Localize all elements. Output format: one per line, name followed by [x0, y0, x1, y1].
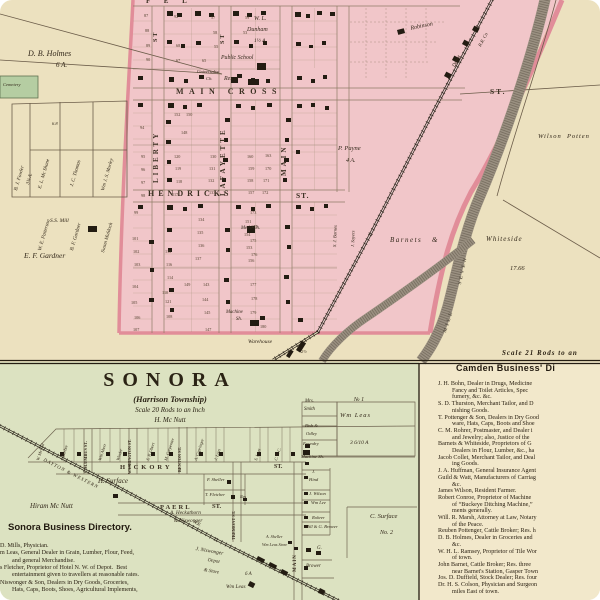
owner-label: J. C. Thomas: [70, 160, 83, 188]
directory-entry-line: Jacob Collet, Merchant Tailor, and Deal: [438, 455, 535, 461]
plot-number: 172: [262, 191, 268, 195]
plot-number: 97: [141, 181, 145, 185]
owner-label: Universalist: [197, 70, 219, 75]
building-footprint: [166, 120, 171, 124]
plot-number: 58: [213, 31, 217, 35]
owner-label: E. F. Gardner: [24, 252, 65, 260]
building-footprint: [296, 42, 301, 46]
directory-entry-line: of “Buckeye Ditching Machine,”: [452, 502, 533, 508]
owner-label: Machine: [226, 311, 243, 316]
directory-entry-line: Reuben Pottenger, Cattle Broker; Res. h: [438, 528, 536, 534]
building-footprint: [322, 41, 326, 45]
owner-label: W. L.: [254, 16, 266, 22]
plot-number: 135: [197, 231, 203, 235]
plot-number: 145: [204, 311, 210, 315]
owner-label: Robinson: [410, 21, 433, 32]
plot-number: 171: [263, 179, 269, 183]
owner-label: W. E. Patterson: [38, 219, 52, 252]
plot-number: 136: [198, 244, 204, 248]
owner-label: Wilson Potten: [538, 134, 590, 141]
building-footprint: [286, 300, 290, 304]
plot-number: 153: [246, 246, 252, 250]
building-footprint: [196, 41, 201, 45]
plot-number: 92: [174, 15, 178, 19]
building-footprint: [462, 40, 470, 47]
building-footprint: [167, 40, 172, 44]
directory-entry-line: W. H. L. Ramsey, Proprietor of Tile Wor: [438, 549, 537, 555]
building-footprint: [226, 248, 230, 252]
building-footprint: [251, 207, 255, 211]
building-footprint: [285, 138, 289, 142]
directory-entry-line: J. H. Bohn, Dealer in Drugs, Medicine: [438, 381, 532, 387]
building-footprint: [209, 13, 214, 17]
directory-entry-line: miles East of town.: [452, 589, 499, 595]
owner-label: Sh.: [236, 318, 242, 323]
plot-number: 152: [174, 113, 180, 117]
directory-entry-line: of the Peace.: [452, 522, 483, 528]
building-footprint: [317, 11, 322, 15]
directory-entry-line: John Barnet, Cattle Broker; Res. three: [438, 562, 531, 568]
owner-label: Dunham: [247, 27, 268, 33]
owner-label: Whiteside: [486, 236, 523, 243]
plot-number: 156: [248, 259, 254, 263]
building-footprint: [249, 44, 253, 48]
owner-label: E. L. Mc Shane: [38, 158, 51, 189]
building-footprint: [168, 103, 174, 108]
directory-entry-line: D. B. Holmes, Dealer in Groceries and: [438, 535, 533, 541]
directory-entry-line: Dr. H. S. Colson, Physician and Surgeon: [438, 582, 537, 588]
building-footprint: [177, 13, 182, 17]
owner-label: 17.66: [510, 266, 525, 273]
seven-mile-creek: [322, 0, 546, 361]
mill-label: S.S. Mill: [50, 219, 69, 225]
plot-number: 176: [251, 253, 257, 257]
plot-number: 151: [245, 220, 251, 224]
street-label-top: F E L: [146, 0, 193, 5]
building-footprint: [251, 78, 255, 82]
building-footprint: [287, 245, 291, 249]
plot-number: 147: [205, 328, 211, 332]
plot-number: 160: [247, 155, 253, 159]
plot-number: 95: [141, 155, 145, 159]
plot-number: 173: [250, 211, 256, 215]
camden-street-grid: [133, 6, 465, 333]
owner-label: D. B. Holmes: [28, 50, 71, 58]
owner-label: 3¾ A.: [26, 173, 34, 186]
plot-number: 53: [243, 31, 247, 35]
owner-label: Susan Muldoch: [101, 222, 114, 253]
building-footprint: [183, 105, 187, 109]
building-footprint: [286, 118, 291, 122]
building-footprint: [452, 56, 461, 64]
building-footprint: [149, 298, 154, 302]
owner-label: 1½ A.: [254, 39, 267, 45]
creek-label: MILE: [443, 310, 455, 334]
depot-label: Depot: [452, 55, 463, 69]
camden-directory-heading: Camden Business' Di: [456, 364, 555, 373]
directory-entry-line: of town.: [452, 555, 472, 561]
vacant-block-lines: [350, 8, 445, 80]
plot-number: 159: [248, 167, 254, 171]
directory-entry-line: Barnets & Whiteside, Proprietors of G: [438, 441, 532, 447]
plot-number: 67: [176, 59, 180, 63]
building-footprint: [306, 14, 310, 18]
plot-number: 180: [260, 325, 266, 329]
building-footprint: [181, 44, 185, 48]
directory-entry-line: ing Goods.: [452, 461, 479, 467]
building-footprint: [138, 205, 143, 209]
directory-entry-line: &c.: [452, 482, 461, 488]
plot-number: 114: [167, 276, 173, 280]
plot-number: 148: [181, 131, 187, 135]
directory-entry-line: nishing Goods.: [452, 408, 489, 414]
building-footprint: [283, 178, 287, 182]
camden-scale-note: Scale 21 Rods to an: [502, 349, 578, 357]
directory-entry-line: ments generally.: [452, 508, 492, 514]
directory-entry-line: Robert Conroe, Proprietor of Machine: [438, 495, 531, 501]
building-footprint: [88, 226, 97, 232]
plot-number: 170: [265, 167, 271, 171]
building-footprint: [167, 205, 173, 210]
camden-buildings: [88, 11, 480, 358]
street-label-st-hendricks: ST.: [296, 192, 310, 200]
sonora-title-block: SONORA (Harrison Township) Scale 20 Rods…: [55, 369, 285, 424]
rural-boundary-lines: [0, 14, 222, 197]
plot-number: 68: [176, 44, 180, 48]
plot-number: 87: [144, 14, 148, 18]
building-footprint: [311, 103, 315, 107]
directory-entry-line: J. A. Huffman, General Insurance Agent: [438, 468, 536, 474]
building-footprint: [150, 268, 154, 272]
building-footprint: [257, 63, 266, 70]
plot-number: 175: [250, 239, 256, 243]
building-footprint: [167, 178, 172, 182]
owner-label: Barnets &: [390, 237, 439, 244]
directory-entry-line: fumery, &c. &c.: [452, 394, 492, 400]
plot-number: 103: [134, 263, 140, 267]
building-footprint: [309, 45, 313, 48]
street-label-main-cross: MAIN CROSS: [176, 88, 282, 96]
plot-number: 131: [209, 167, 215, 171]
building-footprint: [297, 76, 302, 80]
building-footprint: [250, 320, 259, 326]
building-footprint: [223, 158, 228, 162]
building-footprint: [444, 72, 452, 79]
building-footprint: [183, 207, 187, 211]
owner-label: P. Payne: [338, 146, 361, 153]
plot-number: 130: [210, 155, 216, 159]
east-boundary-lines: [460, 0, 600, 258]
plot-number: 179: [250, 311, 256, 315]
building-footprint: [195, 11, 201, 16]
plot-number: 150: [186, 113, 192, 117]
plot-number: 149: [184, 283, 190, 287]
plot-number: 96: [141, 168, 145, 172]
directory-entry-line: Fancy and Toilet Articles, Spec: [452, 388, 528, 394]
building-footprint: [138, 76, 143, 80]
building-footprint: [296, 205, 301, 209]
owner-label: Res: [224, 76, 233, 82]
building-footprint: [199, 75, 204, 79]
building-footprint: [149, 240, 154, 244]
plot-number: 163: [265, 154, 271, 158]
building-footprint: [310, 207, 314, 211]
building-footprint: [225, 228, 230, 232]
plot-number: 115: [165, 250, 171, 254]
building-footprint: [296, 341, 306, 353]
directory-entry-line: near Barnet's Station, Gasper Town: [452, 569, 538, 575]
directory-entry-line: Dealers in Flour, Lumber, &c., ha: [452, 448, 534, 454]
building-footprint: [169, 77, 174, 82]
directory-entry-line: S. D. Thurston, Merchant Tailor, and D: [438, 401, 534, 407]
cemetery-label: Cemetery: [3, 83, 21, 88]
street-label-st-east: ST.: [490, 88, 507, 96]
plot-number: 157: [248, 191, 254, 195]
owner-label: Wm J. S. Morley: [101, 158, 115, 191]
street-label-main: MAIN: [281, 145, 288, 176]
plot-number: 132: [208, 179, 214, 183]
building-footprint: [397, 28, 405, 35]
owner-label: 4 A.: [346, 158, 356, 164]
plot-number: 134: [198, 218, 204, 222]
building-footprint: [234, 40, 239, 44]
plot-number: 99: [134, 211, 138, 215]
building-footprint: [138, 103, 143, 107]
building-footprint: [231, 77, 238, 83]
street-label-hendricks: HENDRICKS: [148, 190, 232, 198]
warehouse-label: Warehouse: [248, 340, 272, 346]
plot-number: 133: [209, 191, 215, 195]
plot-number: 90: [146, 58, 150, 62]
building-footprint: [167, 228, 172, 232]
building-footprint: [237, 74, 242, 78]
directory-entry-line: ware, Hats, Caps, Boots and Shoe: [452, 421, 535, 427]
plot-number: 108: [166, 315, 172, 319]
building-footprint: [266, 79, 270, 83]
building-footprint: [286, 349, 294, 358]
building-footprint: [197, 103, 202, 107]
street-label-lafayette: LAFAYETTE: [220, 127, 227, 196]
building-footprint: [267, 103, 272, 107]
sonora-title: SONORA: [55, 369, 285, 392]
building-footprint: [284, 275, 289, 279]
building-footprint: [297, 104, 302, 108]
directory-entry-line: Guild & Watt, Manufacturers of Carriag: [438, 475, 536, 481]
building-footprint: [169, 288, 174, 292]
directory-entry-line: C. M. Rohrer, Postmaster, and Dealer i: [438, 428, 533, 434]
plot-number: 57: [211, 16, 215, 20]
lot-lines: [133, 8, 337, 332]
church-label: Meth. Ch.: [241, 227, 260, 232]
cemetery-parcel: [0, 76, 38, 98]
plot-number: 107: [133, 328, 139, 332]
sonora-scale-note: Scale 20 Rods to an Inch: [55, 406, 285, 414]
plot-number: 98: [141, 194, 145, 198]
public-school-label: Public School: [221, 56, 253, 62]
plot-number: 110: [162, 291, 168, 295]
plot-number: 174: [251, 225, 257, 229]
plot-number: 104: [132, 285, 138, 289]
directory-entry-line: and Jewelry; also, Justice of the: [452, 435, 530, 441]
plot-number: 177: [250, 283, 256, 287]
building-footprint: [170, 308, 174, 312]
building-footprint: [236, 205, 241, 209]
street-label-liberty: LIBERTY: [153, 131, 160, 183]
plot-number: 117: [172, 193, 178, 197]
plot-number: 178: [251, 297, 257, 301]
plot-number: 101: [132, 237, 138, 241]
camden-town-tint: [119, 0, 562, 333]
plot-number: 118: [176, 180, 182, 184]
owner-label: B. F. Gardner: [70, 223, 83, 252]
plot-number: 89: [146, 44, 150, 48]
sonora-subtitle: (Harrison Township): [55, 394, 285, 404]
building-footprint: [296, 150, 300, 154]
building-footprint: [251, 106, 255, 110]
building-footprint: [260, 316, 265, 320]
building-footprint: [295, 12, 301, 17]
building-footprint: [233, 11, 239, 16]
building-footprint: [167, 160, 171, 164]
building-footprint: [325, 106, 329, 110]
building-footprint: [222, 178, 226, 182]
plot-number: 65: [202, 59, 206, 63]
plot-number: 154: [244, 233, 250, 237]
building-footprint: [168, 248, 172, 252]
plot-number: 137: [195, 257, 201, 261]
building-footprint: [285, 225, 290, 229]
plot-number: 55: [214, 45, 218, 49]
plot-number: 102: [133, 250, 139, 254]
camden-railroad: [273, 0, 492, 360]
building-footprint: [298, 318, 303, 322]
plot-number: 59: [245, 16, 249, 20]
building-footprint: [225, 118, 230, 122]
street-label: ST: [153, 31, 159, 42]
owner-label: J. Sayers: [351, 230, 356, 247]
plot-number: 106: [134, 316, 140, 320]
plot-number: 105: [131, 301, 137, 305]
building-footprint: [247, 13, 252, 17]
plot-number: 116: [166, 263, 172, 267]
owner-label: 6.8: [52, 122, 58, 127]
plot-number: 119: [175, 167, 181, 171]
owner-label: 6 A.: [56, 62, 67, 69]
sonora-owner-note: H. Mc Nutt: [55, 416, 285, 424]
building-footprint: [323, 75, 327, 79]
directory-entry-line: Will. R. Marsh, Attorney at Law, Notary: [438, 515, 537, 521]
plot-number: 144: [202, 298, 208, 302]
building-footprint: [284, 158, 289, 162]
owner-label: B. J. Fowler: [14, 165, 26, 191]
creek-label: SEVEN: [458, 255, 469, 285]
building-footprint: [224, 278, 229, 282]
building-footprint: [166, 140, 171, 144]
building-footprint: [184, 79, 188, 83]
atlas-page: F E LMAIN CROSSST.HENDRICKSST.LIBERTYSTL…: [0, 0, 600, 600]
building-footprint: [324, 204, 328, 208]
building-footprint: [330, 12, 335, 16]
building-footprint: [248, 79, 259, 85]
directory-entry-line: James Wilson, Resident Farmer.: [438, 488, 516, 494]
street-label: ST: [220, 33, 226, 44]
camden-directory: Camden Business' Di J. H. Bohn, Dealer i…: [419, 362, 600, 600]
directory-entry-line: T. Pottenger & Son, Dealers in Dry Good: [438, 415, 539, 421]
plot-number: 88: [145, 29, 149, 33]
plot-number: 143: [203, 283, 209, 287]
plot-number: 158: [247, 179, 253, 183]
sonora-directory-heading: Sonora Business Directory.: [8, 523, 132, 533]
owner-label: S. J. Barnes: [333, 225, 338, 247]
plot-number: 94: [140, 126, 144, 130]
building-footprint: [247, 226, 255, 233]
owner-label: Ch.: [206, 77, 213, 82]
directory-entry-line: &c.: [452, 542, 461, 548]
building-footprint: [167, 11, 173, 16]
railroad-label: R.R. Co: [479, 33, 490, 49]
directory-entry-line: Jos. D. Duffield, Stock Dealer; Res. fou…: [438, 575, 537, 581]
building-footprint: [226, 300, 230, 304]
building-footprint: [198, 204, 203, 208]
plot-number: 120: [174, 155, 180, 159]
building-footprint: [263, 41, 267, 45]
building-footprint: [261, 11, 266, 15]
building-footprint: [236, 104, 241, 108]
building-footprint: [224, 138, 228, 142]
railroad-ties: [274, 0, 494, 360]
owner-label: 2½: [301, 350, 307, 355]
building-footprint: [266, 204, 271, 208]
plot-number: 121: [165, 300, 171, 304]
building-footprint: [472, 26, 480, 33]
building-footprint: [311, 79, 315, 83]
